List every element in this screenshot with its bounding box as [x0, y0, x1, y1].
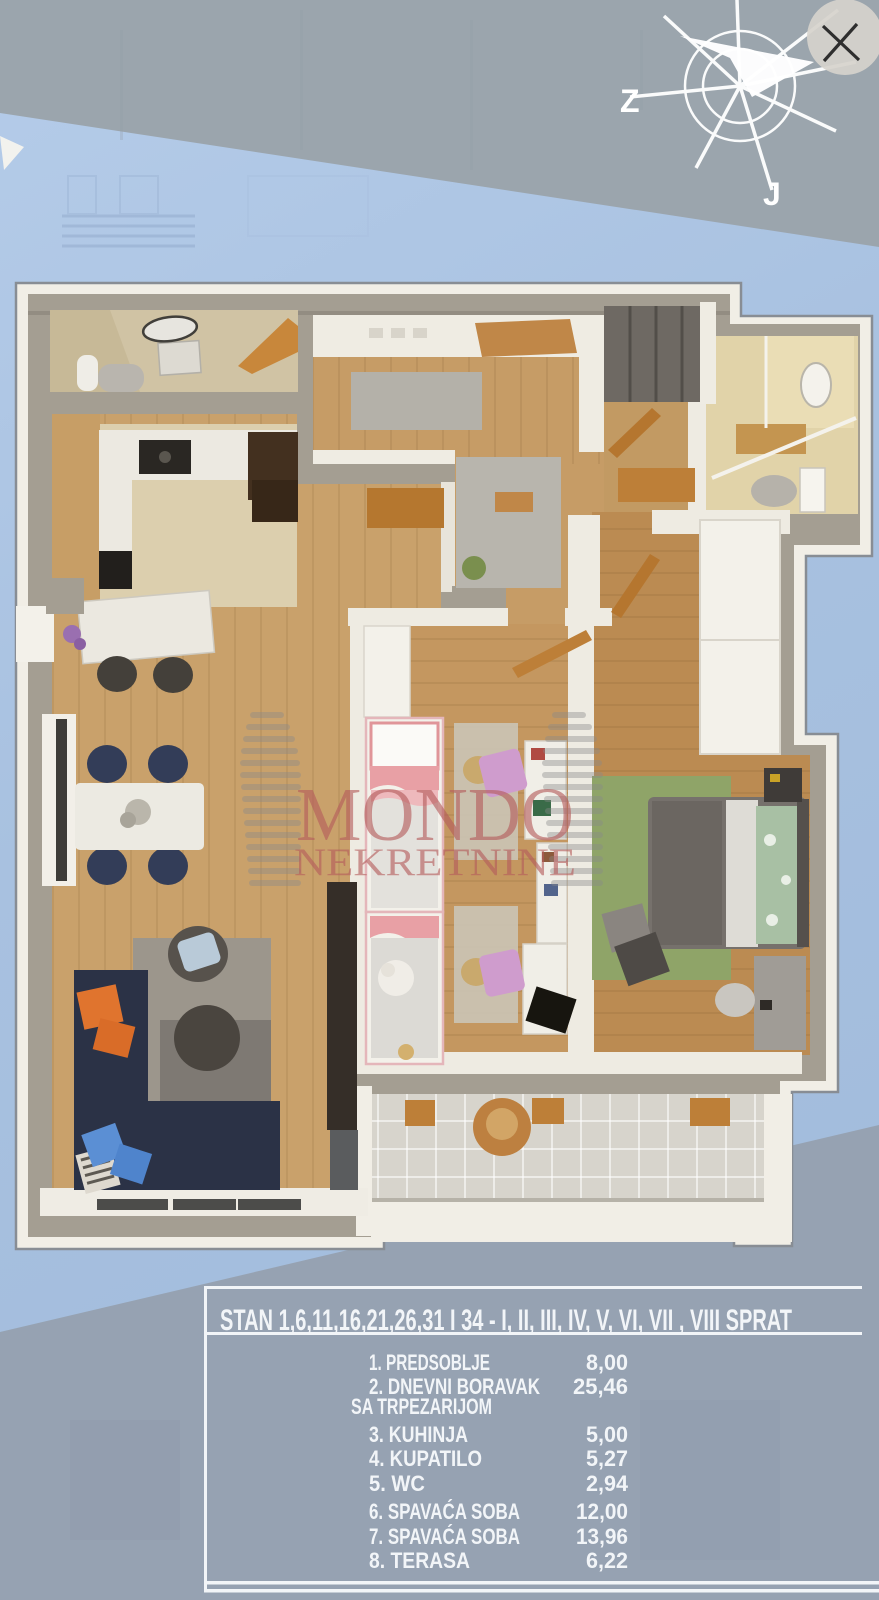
- svg-text:2,94: 2,94: [586, 1471, 629, 1496]
- svg-text:1. PREDSOBLJE: 1. PREDSOBLJE: [369, 1350, 490, 1375]
- svg-text:3. KUHINJA: 3. KUHINJA: [369, 1422, 468, 1447]
- svg-text:8,00: 8,00: [586, 1350, 628, 1375]
- svg-text:6. SPAVAĆA SOBA: 6. SPAVAĆA SOBA: [369, 1499, 520, 1524]
- svg-text:5. WC: 5. WC: [369, 1471, 425, 1496]
- svg-text:25,46: 25,46: [573, 1374, 628, 1399]
- svg-text:5,27: 5,27: [586, 1446, 628, 1471]
- svg-text:8. TERASA: 8. TERASA: [369, 1548, 470, 1573]
- svg-text:SA TRPEZARIJOM: SA TRPEZARIJOM: [351, 1394, 492, 1419]
- svg-text:J: J: [763, 176, 781, 212]
- svg-text:4. KUPATILO: 4. KUPATILO: [369, 1446, 482, 1471]
- svg-text:Z: Z: [620, 83, 640, 119]
- svg-text:6,22: 6,22: [586, 1548, 628, 1573]
- svg-text:13,96: 13,96: [576, 1524, 628, 1549]
- svg-text:NEKRETNINE: NEKRETNINE: [294, 841, 576, 884]
- svg-text:5,00: 5,00: [586, 1422, 628, 1447]
- svg-text:12,00: 12,00: [576, 1499, 628, 1524]
- svg-text:7. SPAVAĆA SOBA: 7. SPAVAĆA SOBA: [369, 1524, 520, 1549]
